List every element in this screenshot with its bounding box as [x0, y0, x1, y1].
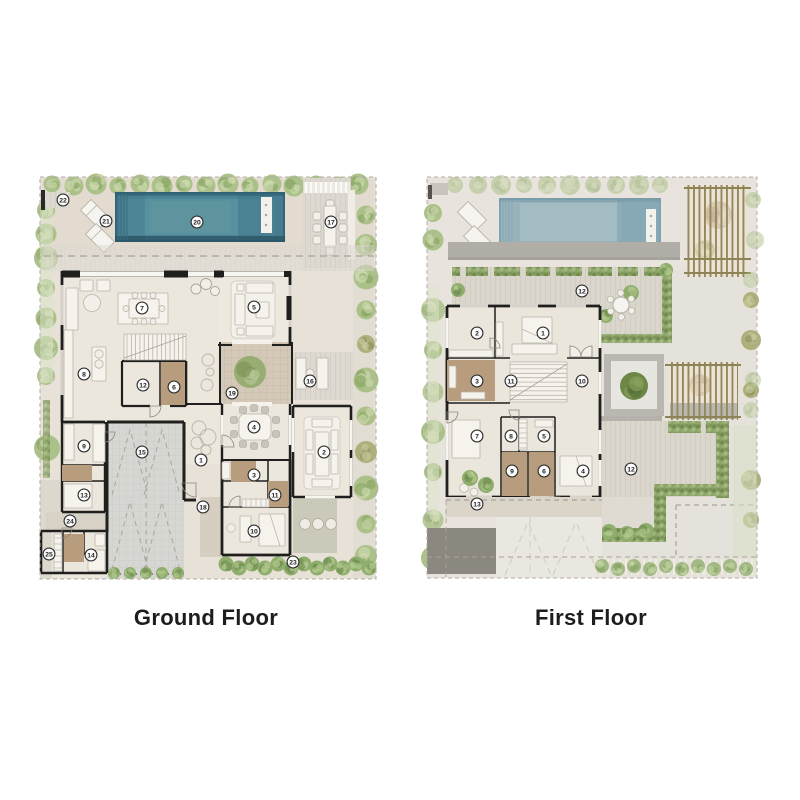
svg-text:14: 14 — [87, 552, 95, 559]
svg-text:3: 3 — [475, 378, 479, 385]
svg-text:13: 13 — [473, 501, 481, 508]
svg-text:4: 4 — [581, 468, 585, 475]
svg-text:10: 10 — [578, 378, 586, 385]
svg-text:23: 23 — [289, 559, 297, 566]
svg-text:1: 1 — [541, 330, 545, 337]
svg-text:22: 22 — [59, 197, 67, 204]
svg-text:6: 6 — [542, 468, 546, 475]
svg-text:2: 2 — [322, 449, 326, 456]
svg-text:17: 17 — [327, 219, 335, 226]
svg-text:5: 5 — [542, 433, 546, 440]
svg-text:7: 7 — [140, 305, 144, 312]
svg-text:25: 25 — [45, 551, 53, 558]
svg-text:9: 9 — [510, 468, 514, 475]
svg-text:12: 12 — [578, 288, 586, 295]
svg-text:20: 20 — [193, 219, 201, 226]
svg-text:5: 5 — [252, 304, 256, 311]
svg-text:6: 6 — [172, 384, 176, 391]
svg-text:8: 8 — [82, 371, 86, 378]
svg-text:10: 10 — [250, 528, 258, 535]
svg-text:8: 8 — [509, 433, 513, 440]
svg-text:11: 11 — [271, 492, 278, 499]
svg-text:19: 19 — [228, 390, 236, 397]
svg-text:9: 9 — [82, 443, 86, 450]
svg-text:24: 24 — [66, 518, 74, 525]
svg-text:18: 18 — [199, 504, 207, 511]
svg-text:1: 1 — [199, 457, 203, 464]
svg-text:12: 12 — [139, 382, 147, 389]
svg-text:16: 16 — [306, 378, 314, 385]
svg-text:First Floor: First Floor — [535, 605, 647, 630]
svg-text:4: 4 — [252, 424, 256, 431]
svg-text:7: 7 — [475, 433, 479, 440]
svg-text:2: 2 — [475, 330, 479, 337]
svg-text:13: 13 — [80, 492, 88, 499]
svg-text:15: 15 — [138, 449, 146, 456]
svg-text:21: 21 — [102, 218, 110, 225]
svg-text:3: 3 — [252, 472, 256, 479]
svg-text:11: 11 — [507, 378, 514, 385]
svg-text:12: 12 — [627, 466, 635, 473]
svg-text:Ground Floor: Ground Floor — [134, 605, 278, 630]
